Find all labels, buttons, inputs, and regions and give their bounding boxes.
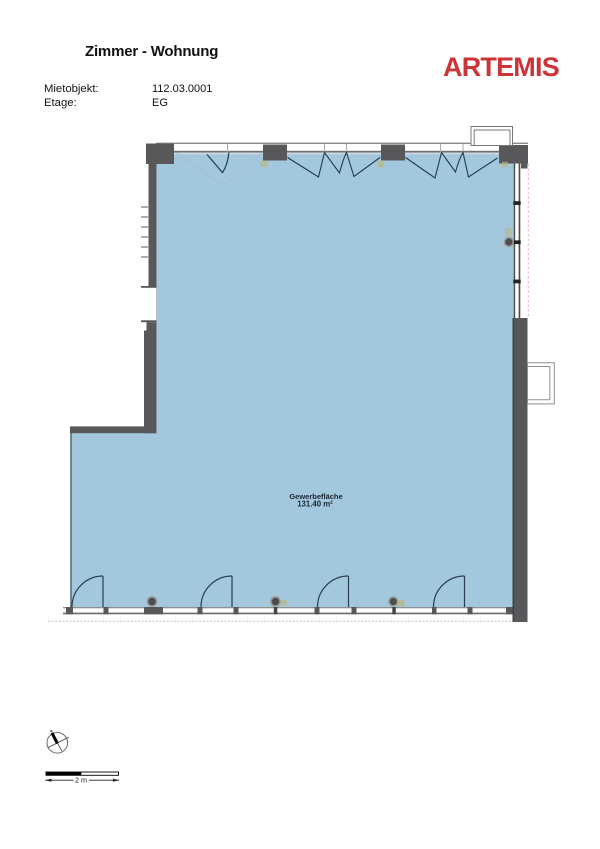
svg-text:131.40 m²: 131.40 m² [297,500,333,509]
svg-text:2 m: 2 m [75,776,87,785]
